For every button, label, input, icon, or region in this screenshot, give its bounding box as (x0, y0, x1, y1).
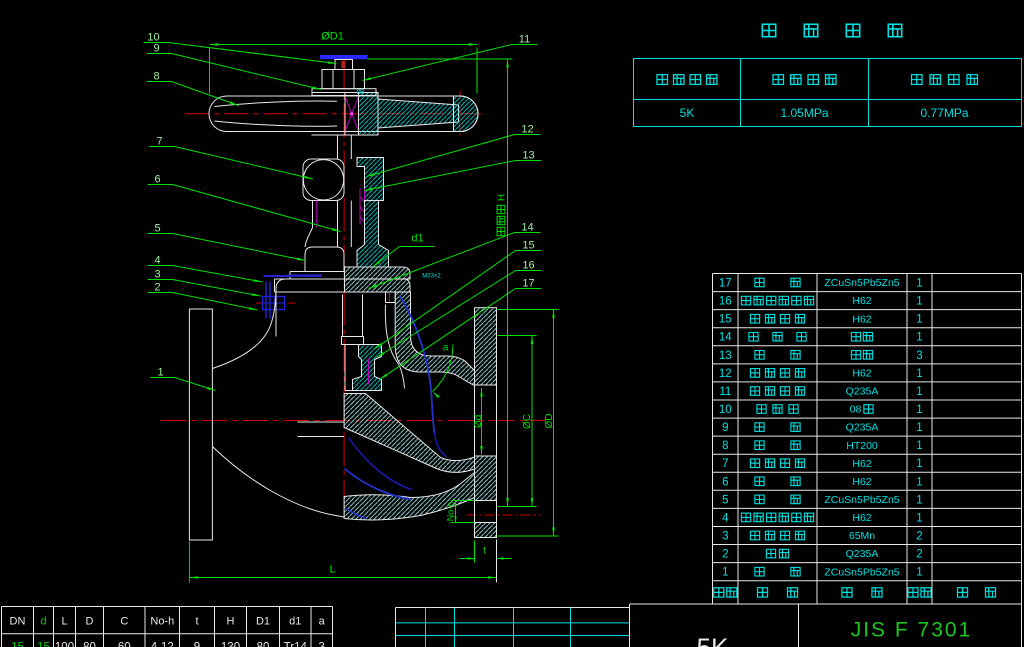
svg-text:C: C (120, 616, 128, 628)
svg-text:ZCuSn5Pb5Zn5: ZCuSn5Pb5Zn5 (824, 277, 899, 289)
svg-text:ØD: ØD (544, 414, 555, 429)
svg-text:d1: d1 (411, 233, 423, 245)
svg-text:No-h: No-h (446, 502, 456, 522)
svg-text:1: 1 (916, 368, 922, 380)
svg-text:H: H (497, 194, 508, 201)
svg-text:5K: 5K (697, 633, 729, 647)
svg-text:ZCuSn5Pb5Zn5: ZCuSn5Pb5Zn5 (824, 494, 899, 506)
svg-text:3: 3 (916, 350, 922, 362)
svg-text:H: H (227, 616, 235, 628)
svg-text:9: 9 (194, 642, 200, 647)
svg-text:t: t (483, 546, 486, 557)
svg-text:6: 6 (722, 476, 728, 488)
svg-text:1: 1 (916, 404, 922, 416)
svg-text:H62: H62 (852, 295, 871, 307)
svg-text:7: 7 (156, 136, 162, 148)
svg-text:4-12: 4-12 (151, 642, 174, 647)
svg-text:14: 14 (719, 332, 732, 344)
svg-text:ZCuSn5Pb5Zn5: ZCuSn5Pb5Zn5 (824, 566, 899, 578)
svg-text:H62: H62 (852, 368, 871, 380)
svg-text:1: 1 (916, 458, 922, 470)
svg-text:15: 15 (522, 240, 534, 252)
svg-text:15: 15 (37, 642, 50, 647)
svg-text:6: 6 (154, 174, 160, 186)
svg-text:65Mn: 65Mn (849, 530, 875, 542)
svg-text:a: a (319, 616, 326, 628)
svg-text:12: 12 (719, 368, 732, 380)
svg-text:D: D (86, 616, 94, 628)
svg-text:3: 3 (154, 269, 160, 281)
svg-text:1: 1 (916, 440, 922, 452)
svg-text:Ø8: Ø8 (356, 90, 365, 96)
svg-text:10: 10 (719, 404, 732, 416)
svg-text:08: 08 (850, 404, 862, 416)
svg-text:d: d (40, 616, 46, 628)
svg-text:No-h: No-h (150, 616, 174, 628)
svg-text:17: 17 (719, 278, 732, 290)
svg-text:12: 12 (521, 124, 533, 136)
svg-text:d1: d1 (289, 616, 301, 628)
svg-text:15: 15 (11, 642, 24, 647)
svg-text:1: 1 (722, 567, 728, 579)
svg-text:H62: H62 (852, 313, 871, 325)
svg-text:1: 1 (157, 367, 163, 379)
svg-text:Q235A: Q235A (846, 548, 879, 560)
svg-text:D1: D1 (256, 616, 270, 628)
svg-text:13: 13 (719, 350, 732, 362)
svg-text:0.77MPa: 0.77MPa (920, 106, 968, 120)
svg-text:1: 1 (916, 494, 922, 506)
svg-text:3: 3 (318, 642, 324, 647)
svg-text:9: 9 (722, 422, 728, 434)
svg-text:1.05MPa: 1.05MPa (780, 106, 828, 120)
svg-text:t: t (195, 616, 198, 628)
svg-text:4: 4 (154, 255, 160, 267)
svg-text:9: 9 (153, 43, 159, 55)
svg-text:17: 17 (522, 278, 534, 290)
svg-text:5: 5 (154, 223, 160, 235)
svg-text:2: 2 (916, 531, 922, 543)
svg-text:130: 130 (221, 642, 240, 647)
svg-text:1: 1 (916, 278, 922, 290)
svg-text:16: 16 (719, 296, 732, 308)
svg-text:DN: DN (10, 616, 26, 628)
svg-text:Q235A: Q235A (846, 422, 879, 434)
svg-text:1: 1 (916, 476, 922, 488)
svg-text:H62: H62 (852, 458, 871, 470)
svg-text:15: 15 (719, 314, 732, 326)
svg-text:1: 1 (916, 314, 922, 326)
svg-text:100: 100 (55, 642, 74, 647)
svg-text:3: 3 (722, 531, 728, 543)
svg-text:HT200: HT200 (846, 440, 878, 452)
svg-text:80: 80 (83, 642, 96, 647)
svg-text:80: 80 (257, 642, 270, 647)
svg-text:1: 1 (916, 567, 922, 579)
svg-text:16: 16 (522, 260, 534, 272)
svg-text:H62: H62 (852, 512, 871, 524)
svg-text:13: 13 (522, 150, 534, 162)
svg-text:1: 1 (916, 296, 922, 308)
svg-text:H62: H62 (852, 476, 871, 488)
svg-text:11: 11 (519, 34, 530, 46)
svg-text:ØD1: ØD1 (321, 31, 344, 43)
svg-text:1: 1 (916, 332, 922, 344)
svg-text:8: 8 (153, 71, 159, 83)
svg-text:2: 2 (154, 282, 160, 294)
svg-text:Tr14: Tr14 (284, 642, 308, 647)
svg-text:60: 60 (118, 642, 131, 647)
svg-text:Ød: Ød (473, 415, 484, 428)
svg-text:L: L (61, 616, 67, 628)
svg-text:L: L (329, 564, 335, 576)
svg-text:4: 4 (722, 512, 729, 524)
svg-text:7: 7 (722, 458, 728, 470)
svg-text:Q235A: Q235A (846, 386, 879, 398)
svg-text:2: 2 (916, 549, 922, 561)
svg-text:11: 11 (719, 386, 731, 398)
svg-text:2: 2 (722, 549, 728, 561)
svg-text:1: 1 (916, 422, 922, 434)
svg-text:M33×2: M33×2 (422, 274, 441, 280)
svg-text:a: a (443, 343, 449, 354)
svg-text:1: 1 (916, 386, 922, 398)
svg-text:5: 5 (722, 494, 728, 506)
svg-text:JIS F 7301: JIS F 7301 (851, 619, 973, 642)
svg-text:5K: 5K (680, 106, 695, 120)
svg-text:14: 14 (521, 222, 533, 234)
svg-text:ØC: ØC (522, 414, 533, 429)
svg-text:8: 8 (722, 440, 728, 452)
svg-text:1: 1 (916, 512, 922, 524)
